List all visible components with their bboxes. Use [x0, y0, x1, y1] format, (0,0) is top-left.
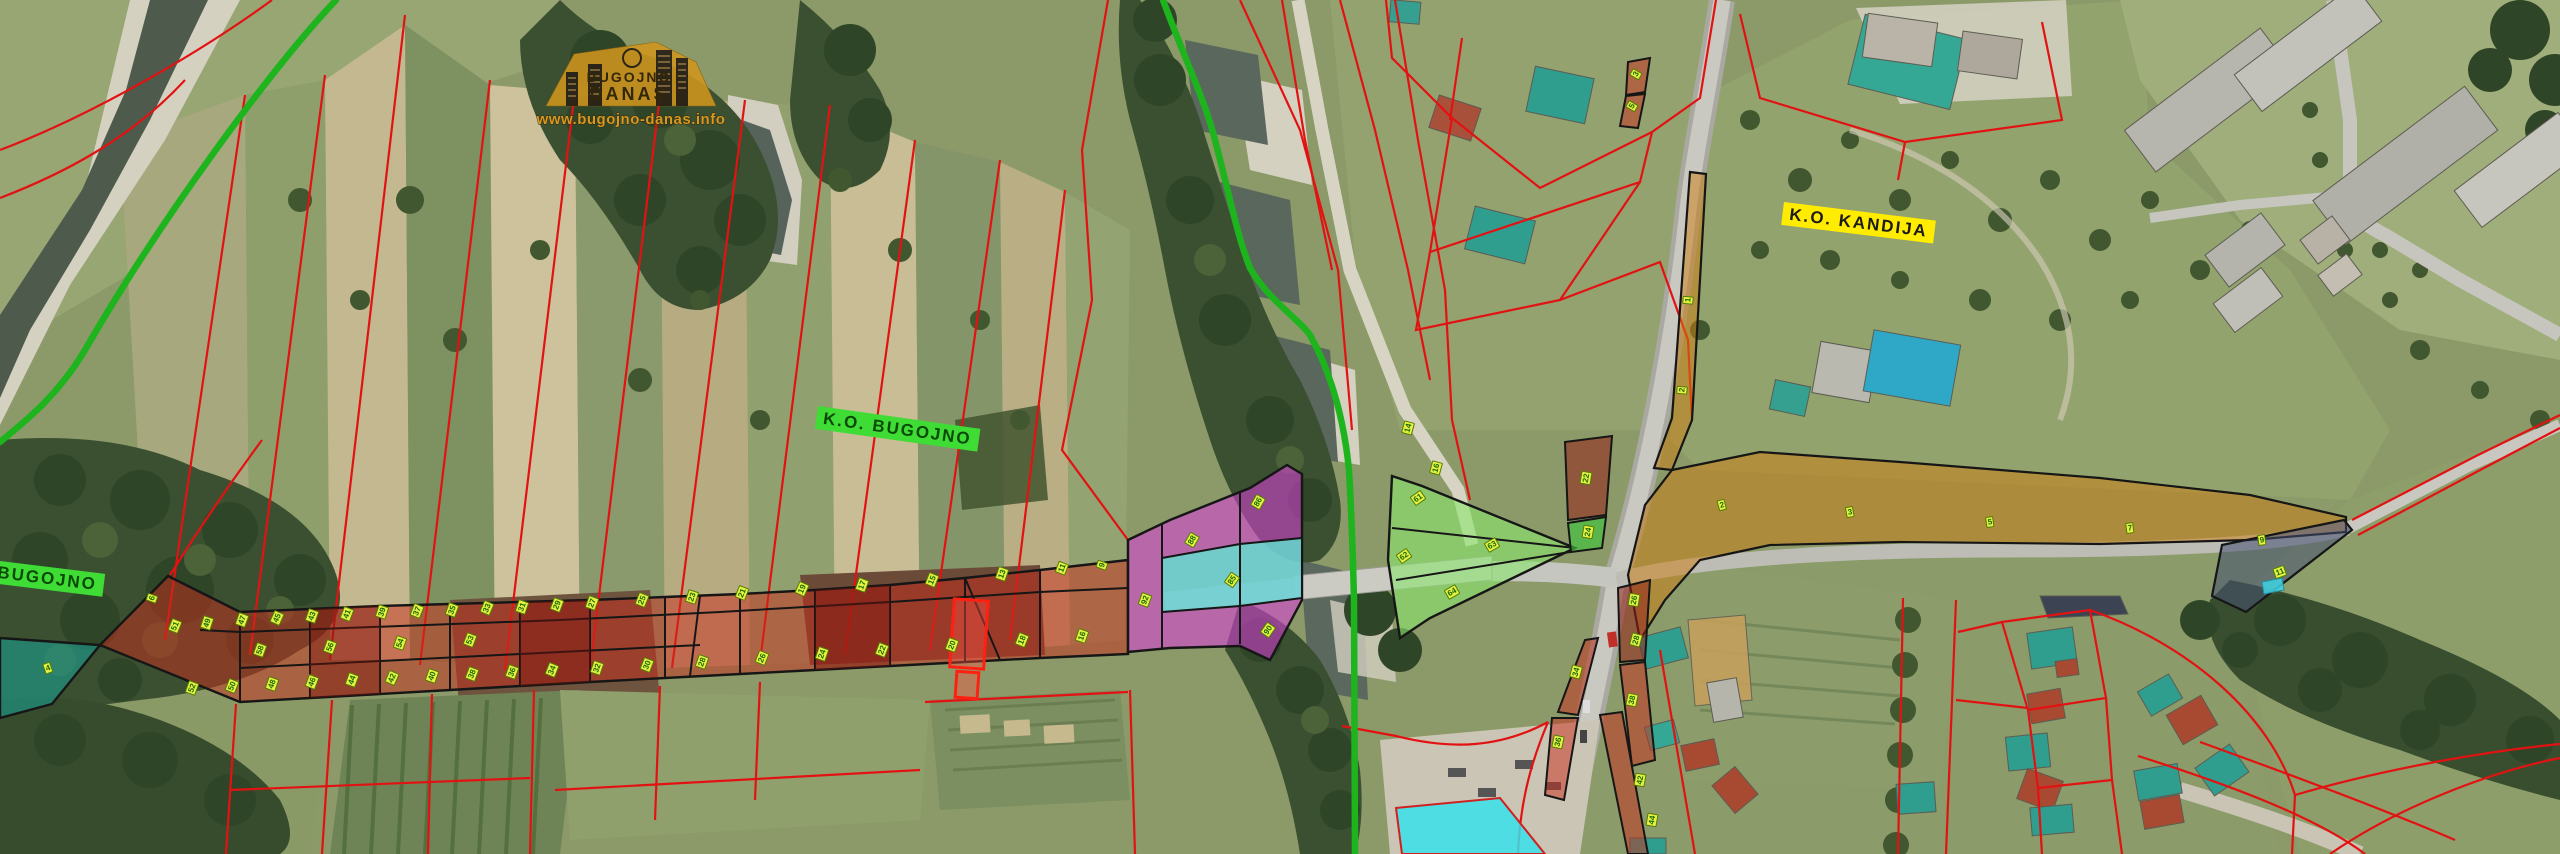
parcel-number-tag: 25 — [634, 592, 649, 608]
parcel-number-tag: 3 — [1629, 68, 1643, 81]
parcel-number-tag: 26 — [1627, 593, 1640, 608]
parcel-number-tag: 44 — [1645, 813, 1658, 828]
parcel-number-tag: 11 — [1055, 560, 1070, 576]
map-annotation-layer: 5149474543413937353331292725232119171513… — [0, 0, 2560, 854]
parcel-number-tag: 54 — [393, 635, 408, 651]
parcel-number-tag: 45 — [269, 610, 284, 626]
place-label-ko-kandija: K.O. KANDIJA — [1781, 202, 1936, 244]
parcel-number-tag: 22 — [875, 642, 890, 658]
parcel-number-tag: 36 — [1551, 735, 1564, 750]
parcel-number-tag: 49 — [200, 615, 214, 631]
parcel-number-tag: 2 — [1716, 499, 1727, 512]
parcel-number-tag: 61 — [1410, 490, 1427, 506]
parcel-number-tag: 29 — [550, 597, 565, 613]
parcel-number-tag: 44 — [345, 672, 360, 688]
parcel-number-tag: 13 — [995, 566, 1010, 582]
parcel-number-tag: 9 — [1095, 559, 1108, 571]
parcel-number-tag: 42 — [384, 670, 399, 686]
parcel-number-tag: 46 — [305, 674, 320, 690]
parcel-number-tag: 85 — [1224, 572, 1240, 589]
parcel-number-tag: 41 — [340, 606, 355, 622]
parcel-number-tag: 58 — [253, 642, 268, 658]
parcel-number-tag: 7 — [2125, 522, 2135, 534]
parcel-number-tag: 5 — [1625, 100, 1639, 113]
parcel-number-tag: 32 — [590, 660, 605, 676]
parcel-number-tag: 64 — [1444, 584, 1461, 600]
parcel-number-tag: 3 — [1845, 506, 1855, 518]
parcel-number-tag: 28 — [695, 654, 710, 670]
parcel-number-tag: 27 — [585, 595, 600, 611]
parcel-number-tag: 40 — [425, 668, 440, 684]
parcel-number-tag: 20 — [945, 637, 960, 653]
parcel-number-tag: 16 — [1429, 460, 1443, 475]
parcel-number-tag: 92 — [1138, 592, 1153, 608]
parcel-number-tag: 28 — [1629, 632, 1643, 647]
parcel-number-tag: 48 — [265, 676, 280, 692]
parcel-number-tag: 90 — [1260, 622, 1276, 639]
parcel-number-tag: 34 — [1569, 664, 1583, 679]
parcel-number-tag: 26 — [754, 650, 769, 666]
place-label-bugojno: BUGOJNO — [0, 560, 105, 597]
parcel-number-tag: 34 — [544, 662, 559, 678]
parcel-number-tag: 1 — [1682, 295, 1694, 304]
parcel-number-tag: 53 — [463, 632, 478, 648]
parcel-number-tag: 15 — [924, 572, 939, 588]
parcel-number-tag: 47 — [235, 612, 250, 628]
parcel-number-tag: 19 — [794, 581, 809, 597]
parcel-number-tag: 62 — [1396, 548, 1413, 564]
parcel-number-tag: 38 — [465, 666, 480, 682]
parcel-number-tag: 21 — [735, 585, 750, 601]
parcel-number-tag: 33 — [479, 600, 494, 616]
place-label-ko-bugojno: K.O. BUGOJNO — [815, 406, 980, 452]
parcel-number-tag: 16 — [1075, 628, 1090, 644]
parcel-number-tag: 86 — [1250, 494, 1266, 511]
parcel-number-tag: 9 — [2257, 534, 2267, 546]
parcel-number-tag: 38 — [1625, 693, 1638, 708]
parcel-number-tag: 35 — [445, 602, 460, 618]
parcel-number-tag: 5 — [1985, 516, 1995, 528]
parcel-number-tag: 11 — [2272, 565, 2287, 580]
parcel-number-tag: 24 — [1581, 525, 1594, 540]
parcel-number-tag: 6 — [145, 592, 158, 604]
parcel-number-tag: 52 — [185, 680, 200, 696]
parcel-number-tag: 31 — [515, 599, 530, 615]
parcel-number-tag: 63 — [1484, 537, 1501, 553]
parcel-number-tag: 39 — [375, 604, 389, 620]
aerial-map-screenshot: 5149474543413937353331292725232119171513… — [0, 0, 2560, 854]
parcel-number-tag: 36 — [505, 664, 520, 680]
parcel-number-tag: 51 — [167, 618, 182, 634]
parcel-number-tag: 88 — [1184, 532, 1200, 549]
parcel-number-tag: 17 — [855, 577, 870, 593]
watermark-title-line2: DANAS — [589, 84, 668, 104]
parcel-number-tag: 14 — [1401, 420, 1415, 435]
parcel-number-tag: 23 — [685, 589, 699, 605]
parcel-number-tag: 4 — [42, 661, 54, 674]
parcel-number-tag: 18 — [1014, 632, 1029, 648]
watermark-title-line1: BUGOJNO — [587, 69, 672, 85]
parcel-number-tag: 30 — [640, 657, 655, 673]
parcel-number-tag: 37 — [409, 603, 424, 619]
parcel-number-tag: 24 — [815, 646, 830, 662]
parcel-number-tag: 2 — [1676, 385, 1688, 394]
watermark-logo: BUGOJNO DANAS www.bugojno-danas.info — [536, 36, 726, 130]
parcel-number-tag: 56 — [323, 639, 338, 655]
parcel-number-tag: 42 — [1633, 773, 1646, 788]
watermark-url: www.bugojno-danas.info — [536, 111, 725, 128]
parcel-number-tag: 22 — [1579, 471, 1592, 486]
parcel-number-tag: 43 — [305, 608, 320, 624]
parcel-number-tag: 50 — [224, 678, 239, 694]
